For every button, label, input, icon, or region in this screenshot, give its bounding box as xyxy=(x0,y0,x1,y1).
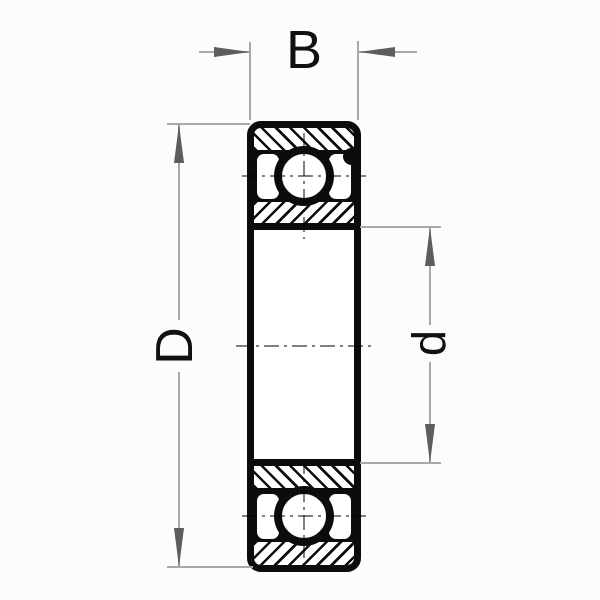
arrow-left-icon xyxy=(359,47,395,57)
dim-label-width: B xyxy=(286,23,322,77)
arrow-right-icon xyxy=(214,47,250,57)
arrow-down-icon xyxy=(425,424,435,463)
ball-bottom-centerline-v xyxy=(303,459,305,569)
dim-label-outer-diameter: D xyxy=(149,327,201,365)
arrow-up-icon xyxy=(425,227,435,266)
ball-top-centerline-v xyxy=(303,133,305,239)
main-axis-centerline xyxy=(236,345,374,347)
dim-label-bore-diameter: d xyxy=(406,330,453,356)
arrow-up-icon xyxy=(174,124,184,163)
seal-groove-dot xyxy=(343,148,360,165)
bearing-drawing: B D d xyxy=(0,0,600,600)
arrow-down-icon xyxy=(174,528,184,567)
